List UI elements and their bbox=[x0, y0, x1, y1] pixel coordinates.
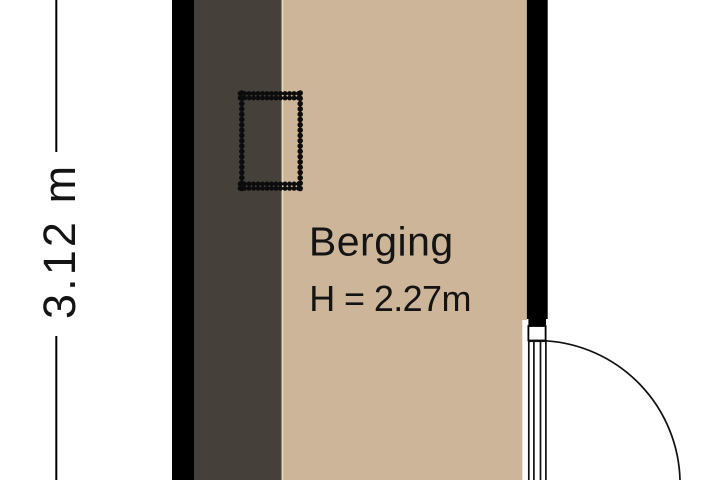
svg-text:H = 2.27m: H = 2.27m bbox=[309, 278, 471, 319]
svg-text:3.12 m: 3.12 m bbox=[34, 163, 85, 319]
svg-text:Berging: Berging bbox=[309, 218, 454, 264]
